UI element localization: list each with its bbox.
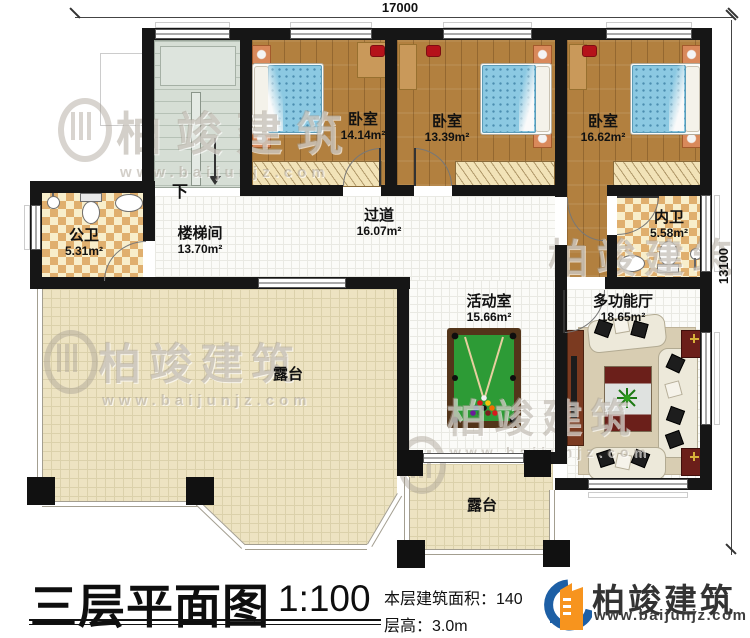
room-label-bedroom-middle: 卧室 13.39m² bbox=[402, 113, 492, 144]
room-name: 露台 bbox=[253, 366, 323, 383]
plan-title: 三层平面图 bbox=[30, 568, 270, 637]
room-label-activity-room: 活动室 15.66m² bbox=[444, 293, 534, 324]
watermark-text: 柏竣建筑 bbox=[446, 386, 651, 444]
nightstand bbox=[533, 45, 552, 64]
desk bbox=[399, 44, 417, 90]
wall bbox=[385, 28, 397, 185]
room-area: 15.66m² bbox=[444, 310, 534, 324]
door-leaf bbox=[379, 148, 381, 186]
watermark-url: www.baijunjz.com bbox=[102, 392, 311, 409]
stair-direction-label: 下 bbox=[166, 184, 194, 201]
window bbox=[290, 29, 372, 39]
room-area: 18.65m² bbox=[568, 310, 678, 324]
floor-area-note: 本层建筑面积：140 bbox=[384, 585, 523, 609]
dimension-right-value: 13100 bbox=[716, 248, 731, 284]
room-area: 13.70m² bbox=[155, 242, 245, 256]
wall bbox=[381, 185, 414, 196]
drain-icon bbox=[47, 196, 60, 209]
wall-device-icon bbox=[370, 45, 385, 57]
title-underline bbox=[29, 619, 381, 621]
window bbox=[258, 278, 346, 288]
pillar bbox=[524, 450, 551, 477]
nightstand bbox=[252, 45, 271, 64]
wall bbox=[143, 193, 155, 241]
bed-sheet-fold bbox=[669, 65, 684, 131]
railing bbox=[37, 289, 43, 502]
pillar bbox=[27, 477, 55, 505]
wall bbox=[397, 289, 409, 452]
room-name: 卧室 bbox=[318, 111, 408, 128]
floor-plan: 柏竣建筑 www.baijunjz.com 柏竣建筑 www.baijunjz.… bbox=[0, 0, 750, 638]
room-name: 多功能厅 bbox=[568, 293, 678, 310]
wall bbox=[555, 277, 567, 289]
bed-pillow bbox=[685, 66, 700, 132]
sink-icon bbox=[115, 194, 143, 212]
nightstand bbox=[682, 45, 701, 64]
room-label-stairwell: 楼梯间 13.70m² bbox=[155, 225, 245, 256]
window bbox=[701, 332, 711, 425]
window bbox=[588, 479, 688, 489]
wall bbox=[240, 28, 252, 186]
stair-landing bbox=[160, 46, 236, 86]
plan-scale: 1:100 bbox=[278, 578, 371, 620]
window-sill bbox=[714, 332, 720, 425]
watermark: 柏竣建筑 www.baijunjz.com bbox=[58, 98, 356, 181]
room-name: 卧室 bbox=[402, 113, 492, 130]
room-area: 5.31m² bbox=[44, 244, 124, 258]
company-logo-icon bbox=[538, 572, 592, 634]
door-leaf bbox=[617, 196, 659, 198]
window-sill bbox=[588, 492, 688, 498]
room-label-terrace-left: 露台 bbox=[253, 366, 323, 383]
room-label-bedroom-left: 卧室 14.14m² bbox=[318, 111, 408, 142]
window bbox=[423, 453, 524, 463]
wall bbox=[607, 235, 617, 277]
stair-down-text: 下 bbox=[166, 184, 194, 201]
door-leaf bbox=[563, 290, 565, 333]
room-name: 卧室 bbox=[558, 113, 648, 130]
dimension-top-value: 17000 bbox=[355, 0, 445, 15]
floor-terrace-left bbox=[42, 289, 397, 553]
window bbox=[443, 29, 532, 39]
wall bbox=[452, 185, 555, 196]
window bbox=[155, 29, 230, 39]
dimension-line-top bbox=[75, 17, 733, 18]
pillar bbox=[186, 477, 214, 505]
wall bbox=[30, 181, 155, 193]
pillar bbox=[397, 540, 425, 568]
room-label-inner-bathroom: 内卫 5.58m² bbox=[629, 209, 709, 240]
wall bbox=[30, 277, 410, 289]
room-name: 楼梯间 bbox=[155, 225, 245, 242]
room-area: 16.07m² bbox=[334, 224, 424, 238]
room-name: 露台 bbox=[447, 497, 517, 514]
room-area: 5.58m² bbox=[629, 226, 709, 240]
wardrobe bbox=[455, 161, 555, 187]
railing bbox=[42, 501, 200, 507]
railing bbox=[245, 544, 367, 550]
room-name: 公卫 bbox=[44, 227, 124, 244]
wall bbox=[142, 28, 154, 181]
title-underline bbox=[29, 624, 381, 625]
room-label-bedroom-right: 卧室 16.62m² bbox=[558, 113, 648, 144]
room-name: 内卫 bbox=[629, 209, 709, 226]
wall bbox=[605, 277, 712, 289]
side-table-star bbox=[693, 452, 695, 461]
room-area: 13.39m² bbox=[402, 130, 492, 144]
room-label-public-bathroom: 公卫 5.31m² bbox=[44, 227, 124, 258]
wall bbox=[240, 185, 343, 196]
wall-device-icon bbox=[426, 45, 441, 57]
room-label-multifunction-hall: 多功能厅 18.65m² bbox=[568, 293, 678, 324]
door-leaf bbox=[414, 148, 416, 186]
window bbox=[606, 29, 692, 39]
company-website: www.baijunjz.com bbox=[594, 607, 747, 624]
watermark-logo-icon bbox=[44, 330, 98, 394]
watermark-logo-icon bbox=[58, 98, 112, 162]
floor-height-note: 层高：3.0m bbox=[384, 612, 468, 636]
room-name: 活动室 bbox=[444, 293, 534, 310]
room-area: 14.14m² bbox=[318, 128, 408, 142]
toilet-icon bbox=[82, 201, 100, 224]
wardrobe bbox=[613, 161, 702, 187]
pillar bbox=[543, 540, 570, 567]
pillar bbox=[397, 450, 423, 476]
window bbox=[31, 205, 41, 250]
room-label-corridor: 过道 16.07m² bbox=[334, 207, 424, 238]
bed-pillow bbox=[535, 66, 550, 132]
room-label-terrace-bottom: 露台 bbox=[447, 497, 517, 514]
wall-device-icon bbox=[582, 45, 597, 57]
side-table-star bbox=[693, 334, 695, 343]
bed-sheet-fold bbox=[519, 65, 534, 131]
wall bbox=[607, 185, 712, 196]
room-name: 过道 bbox=[334, 207, 424, 224]
room-area: 16.62m² bbox=[558, 130, 648, 144]
watermark-url: www.baijunjz.com bbox=[120, 164, 356, 181]
dimension-line-right bbox=[731, 20, 732, 555]
